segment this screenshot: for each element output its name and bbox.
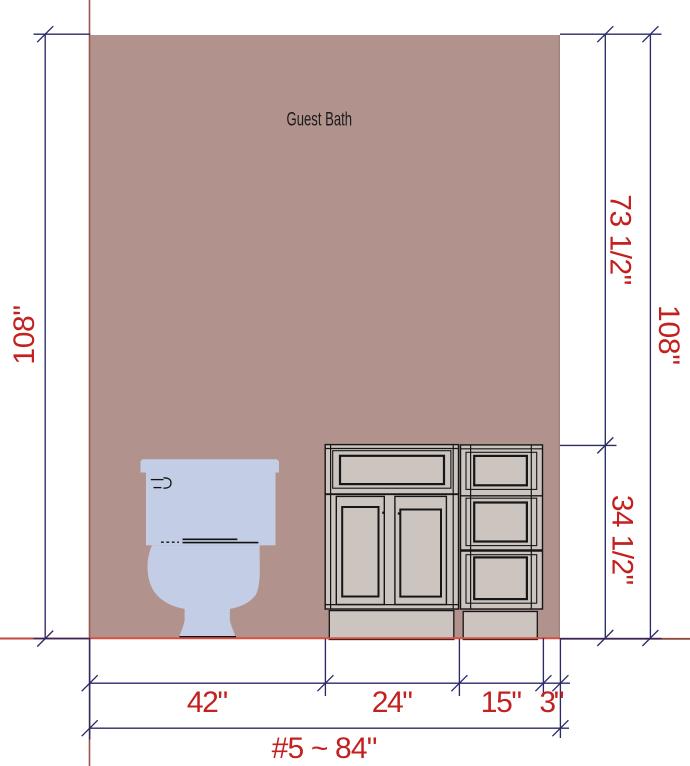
svg-text:24": 24" bbox=[372, 686, 413, 719]
svg-text:3": 3" bbox=[539, 686, 564, 719]
svg-text:108": 108" bbox=[652, 305, 685, 365]
svg-text:Guest Bath: Guest Bath bbox=[287, 110, 353, 131]
svg-text:108": 108" bbox=[8, 305, 41, 365]
svg-text:15": 15" bbox=[481, 686, 522, 719]
svg-text:#5 ~ 84": #5 ~ 84" bbox=[272, 732, 378, 765]
svg-text:34 1/2": 34 1/2" bbox=[606, 495, 639, 585]
svg-text:42": 42" bbox=[187, 686, 228, 719]
svg-text:73 1/2": 73 1/2" bbox=[604, 194, 637, 285]
